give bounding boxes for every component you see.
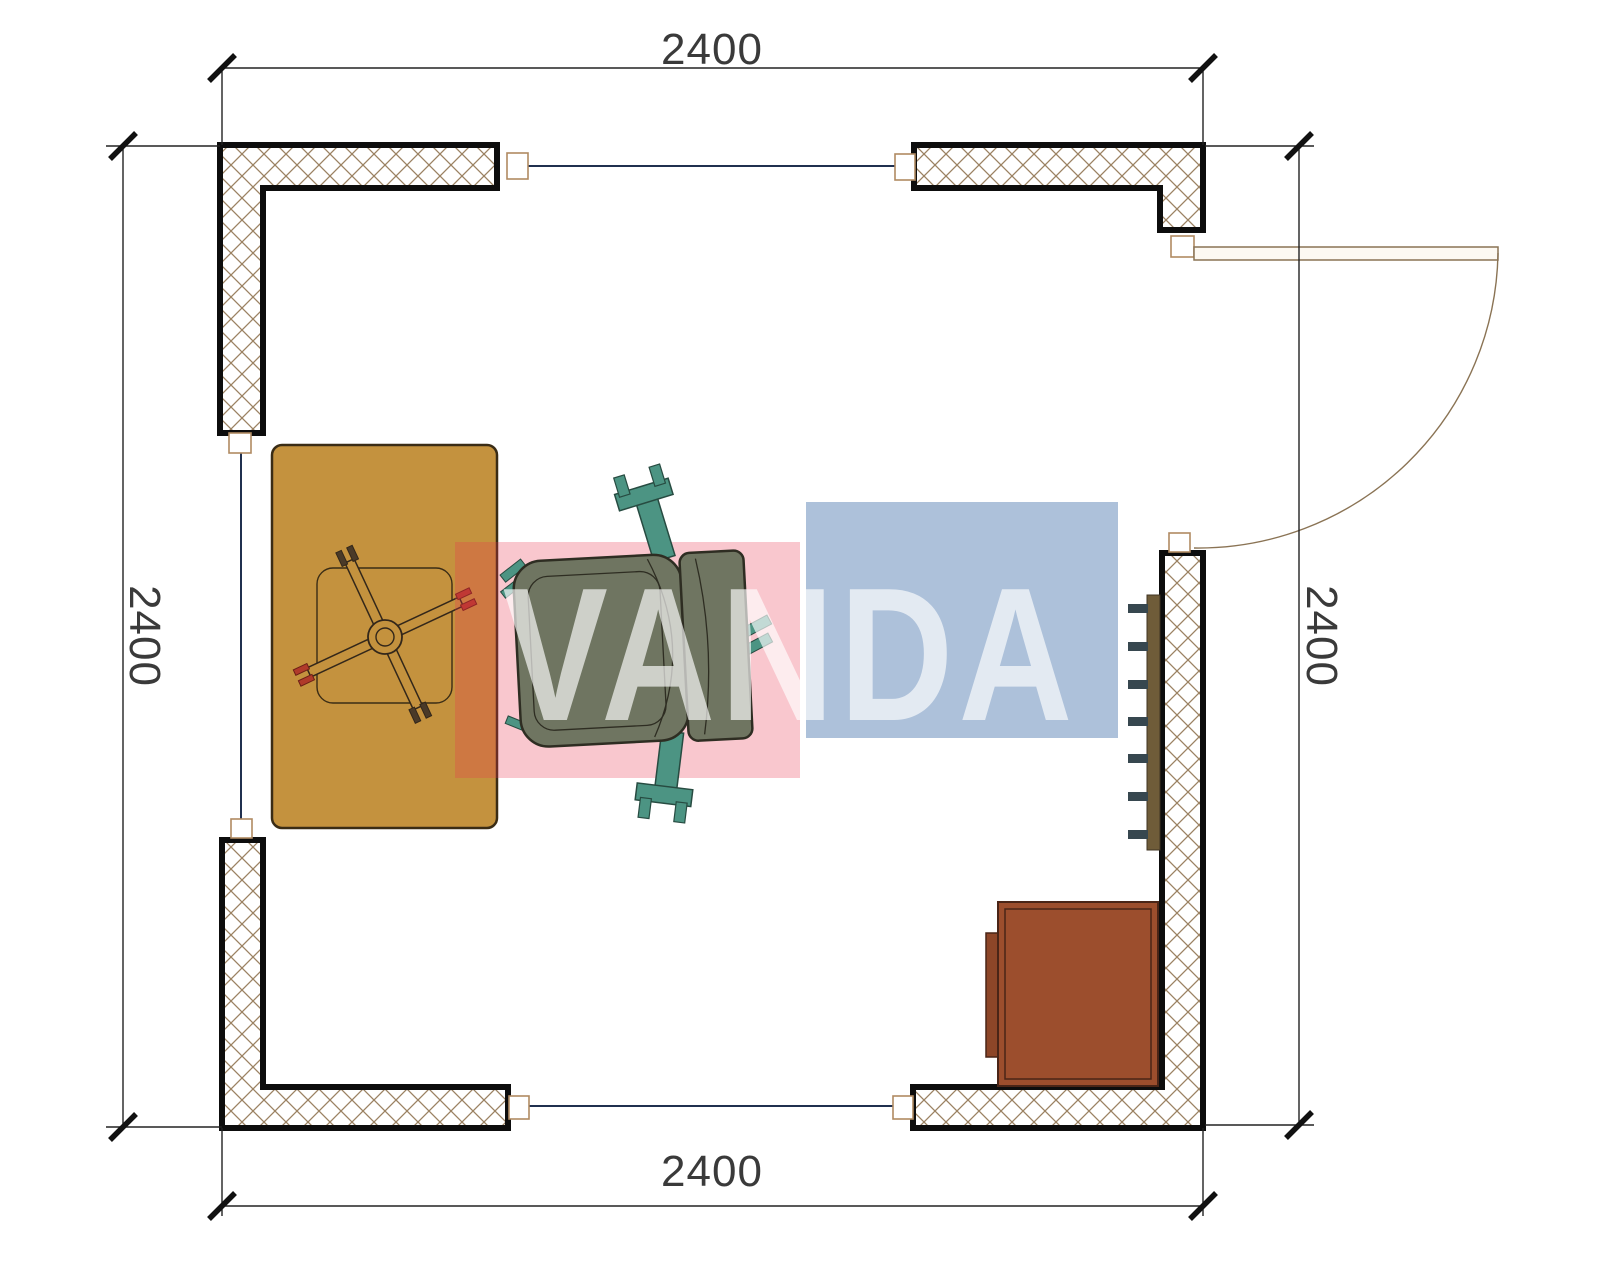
radiator-fin: [1128, 717, 1148, 726]
radiator-fin: [1128, 680, 1148, 689]
dimension-label-bottom: 2400: [661, 1147, 763, 1196]
cabinet: [986, 902, 1158, 1086]
wall-top-left: [220, 145, 497, 433]
dimension-label-left: 2400: [120, 585, 169, 687]
door-swing-arc: [1194, 253, 1498, 548]
radiator-fin: [1128, 604, 1148, 613]
dim-ext-top: [222, 68, 1203, 145]
door-strike-frame: [1169, 533, 1190, 552]
window-frame: [229, 433, 251, 453]
radiator-fin: [1128, 754, 1148, 763]
door: [1169, 236, 1498, 552]
window-frame: [895, 154, 915, 180]
watermark-text: VANDA: [503, 549, 1078, 761]
dimension-label-right: 2400: [1297, 585, 1346, 687]
window-frame: [507, 153, 528, 179]
window-frame: [509, 1096, 529, 1119]
wall-top-right: [914, 145, 1203, 230]
cabinet-body: [998, 902, 1158, 1086]
window-frame: [893, 1096, 913, 1119]
wall-bottom-left: [222, 840, 508, 1128]
radiator: [1128, 595, 1160, 850]
floor-plan-page: 2400 2400 2400 2400 VANDA: [0, 0, 1600, 1280]
radiator-fin: [1128, 642, 1148, 651]
floor-plan-drawing: 2400 2400 2400 2400 VANDA: [0, 0, 1600, 1280]
window-frame: [231, 819, 252, 838]
radiator-fin: [1128, 830, 1148, 839]
radiator-fin: [1128, 792, 1148, 801]
cabinet-door-panel: [986, 933, 998, 1057]
door-hinge-frame: [1171, 236, 1194, 257]
radiator-body: [1147, 595, 1160, 850]
door-leaf: [1194, 247, 1498, 260]
dimension-label-top: 2400: [661, 25, 763, 74]
